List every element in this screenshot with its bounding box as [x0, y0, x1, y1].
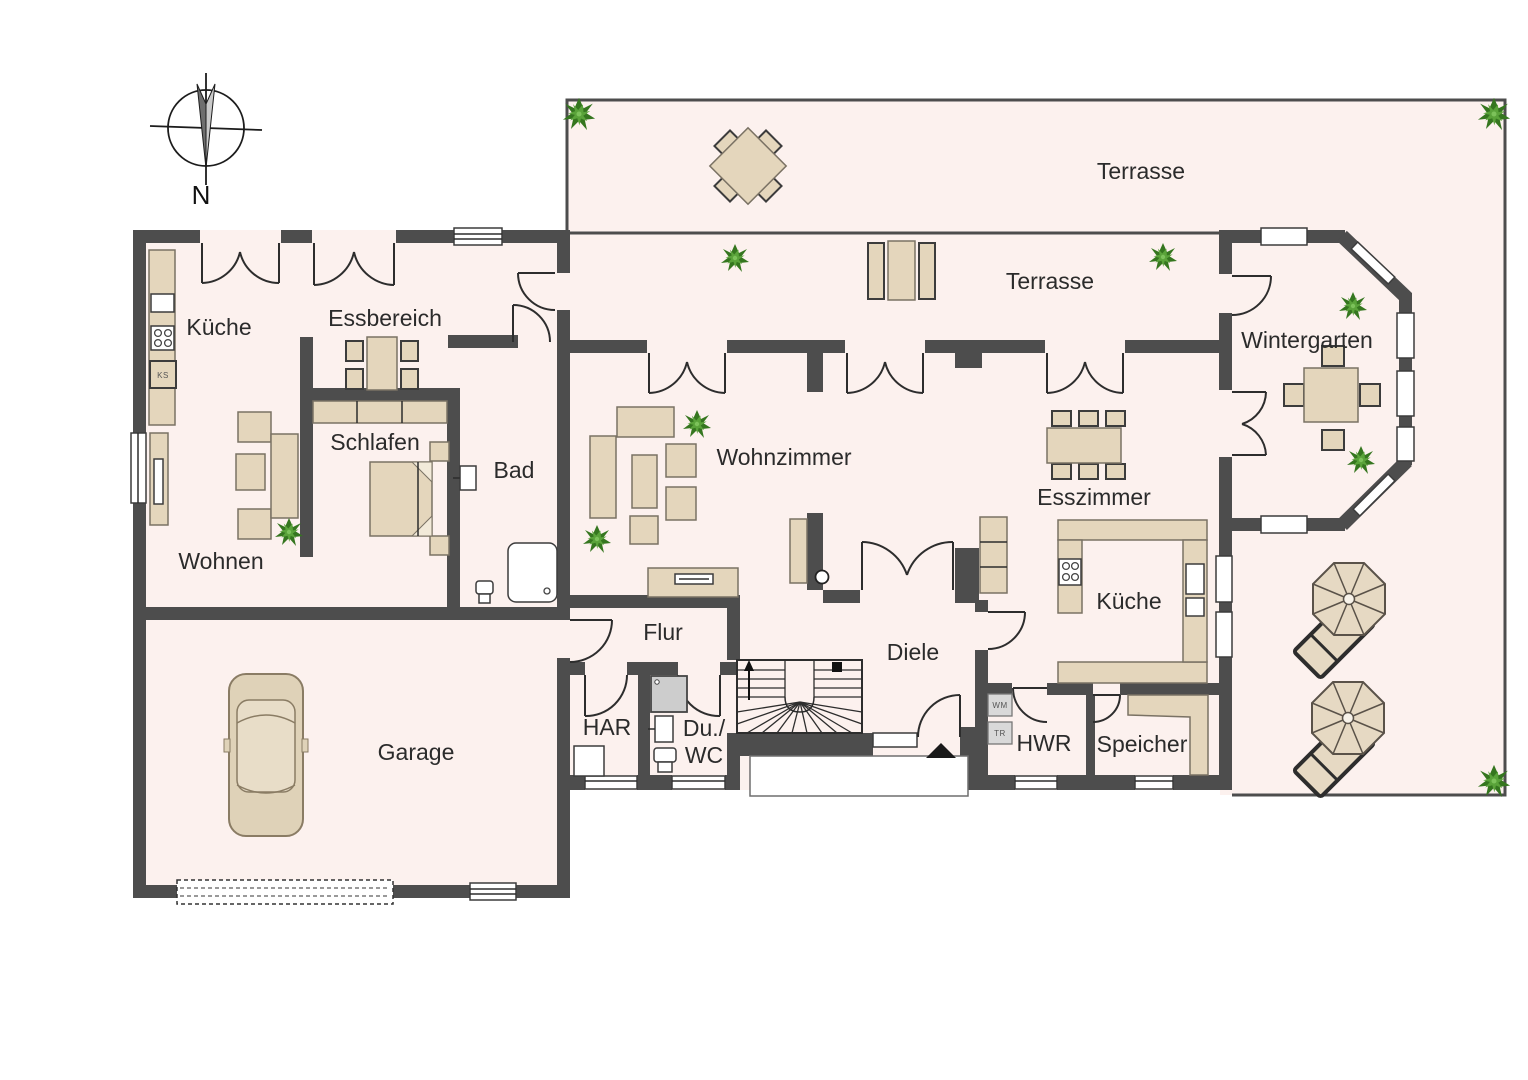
room-label-terrasse-mid: Terrasse [1006, 268, 1094, 294]
room-label-esszimmer: Esszimmer [1037, 484, 1151, 510]
floor-plan-canvas: KS [0, 0, 1528, 1080]
room-label-wohnzimmer: Wohnzimmer [716, 444, 851, 470]
har-fixture [574, 746, 604, 776]
washer-label: WM [992, 701, 1007, 710]
room-label-wintergarten: Wintergarten [1241, 327, 1373, 353]
compass-north-label: N [192, 180, 211, 210]
room-label-kueche-main: Küche [1096, 588, 1161, 614]
kitchenette-counter: KS [149, 250, 176, 425]
compass-icon: N [150, 73, 262, 210]
terrace-dining-set [710, 128, 786, 204]
room-label-har: HAR [583, 714, 632, 740]
room-label-essbereich: Essbereich [328, 305, 442, 331]
room-label-duwc-1: Du./ [683, 715, 726, 741]
entrance-porch [750, 756, 968, 796]
room-label-schlafen: Schlafen [330, 429, 420, 455]
room-label-bad: Bad [494, 457, 535, 483]
room-label-wohnen: Wohnen [178, 548, 263, 574]
dryer-label: TR [994, 729, 1006, 738]
room-label-diele: Diele [887, 639, 939, 665]
fridge-label: KS [157, 371, 169, 380]
room-label-hwr: HWR [1017, 730, 1072, 756]
room-label-flur: Flur [643, 619, 683, 645]
room-label-terrasse-upper: Terrasse [1097, 158, 1185, 184]
staircase [737, 660, 862, 733]
car [224, 674, 308, 836]
room-label-speicher: Speicher [1097, 731, 1188, 757]
esszimmer-dining-set [1047, 411, 1125, 479]
room-label-kueche-elw: Küche [186, 314, 251, 340]
wardrobe [313, 401, 447, 423]
terrace-area [557, 98, 1510, 797]
room-label-garage: Garage [378, 739, 455, 765]
terrace-loungers [868, 241, 935, 300]
garage-window [470, 883, 516, 900]
floor-plan-page: KS [0, 0, 1528, 1080]
room-label-duwc-2: WC [685, 742, 723, 768]
garage-door [177, 880, 393, 904]
